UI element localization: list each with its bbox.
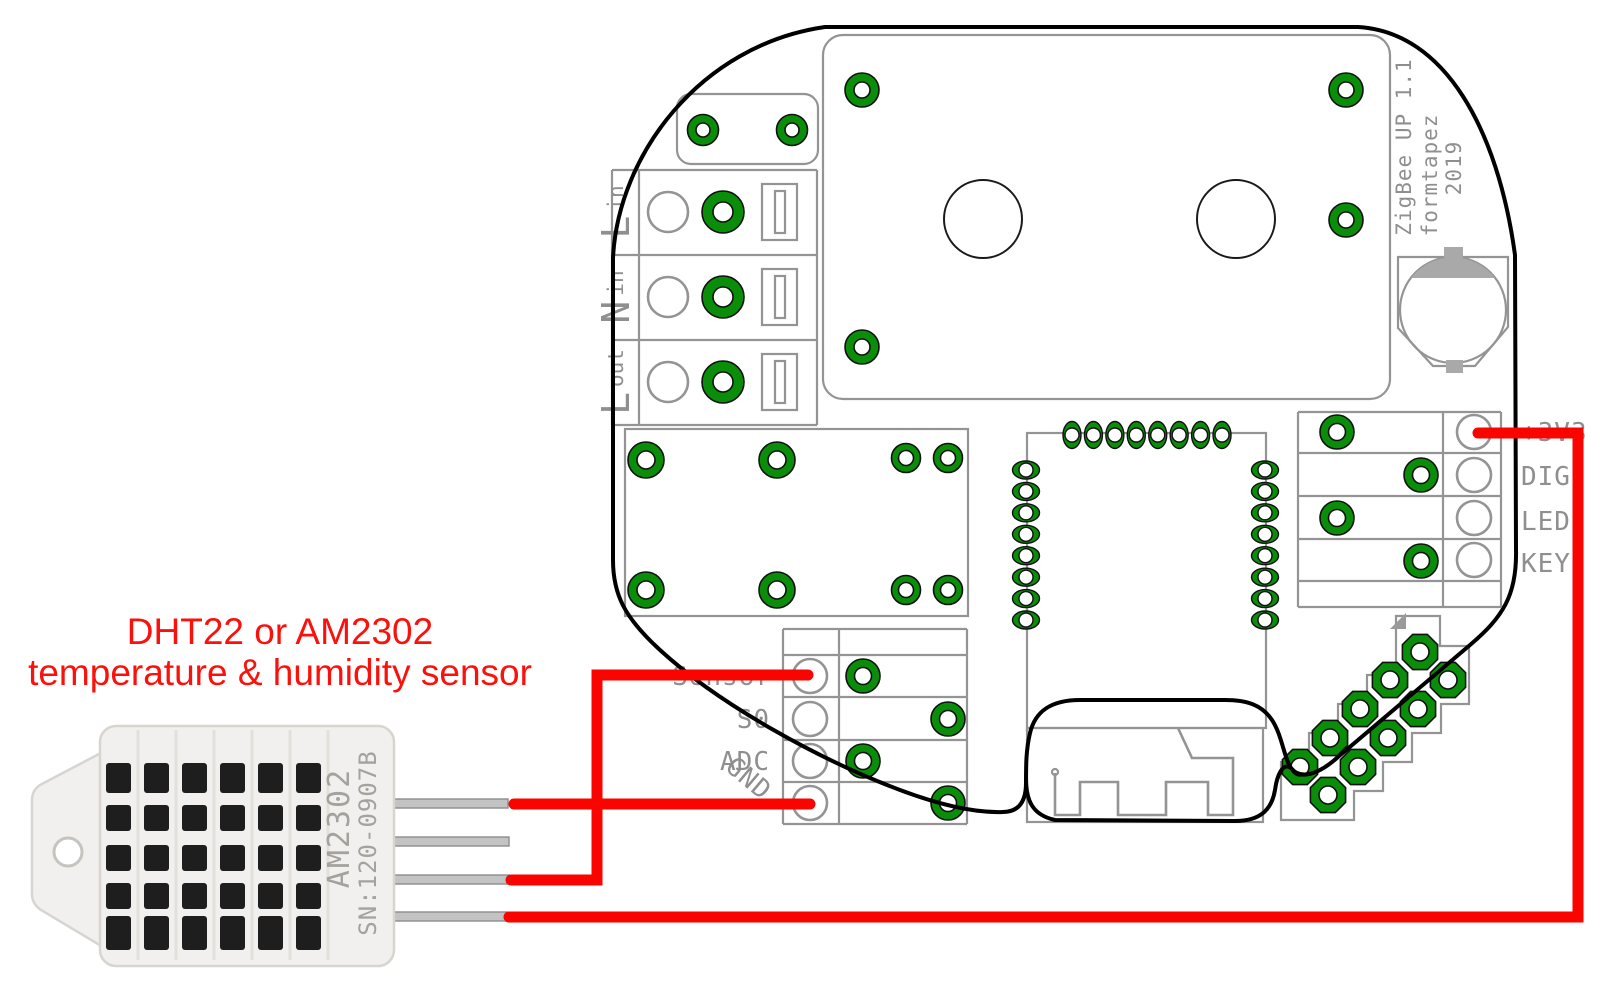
terminal-slot-icon	[762, 184, 797, 410]
header-pad-hole	[1409, 700, 1427, 718]
header-pad-hole	[1381, 671, 1399, 689]
solder-pad-hole	[637, 451, 655, 469]
solder-pad-hole	[1329, 510, 1346, 527]
solder-pad-hole	[1413, 553, 1430, 570]
solder-pad-hole	[768, 451, 786, 469]
grille-slot	[144, 883, 169, 909]
castellated-pad-hole	[1019, 570, 1033, 584]
grille-slot	[106, 883, 131, 909]
grille-slot	[220, 805, 245, 831]
grille-slot	[106, 763, 131, 793]
solder-pad-hole	[854, 82, 870, 98]
solder-pad-hole	[713, 372, 733, 392]
pin-hole	[648, 192, 688, 232]
grille-slot	[258, 916, 283, 950]
grille-slot	[220, 916, 245, 950]
pin-hole	[793, 702, 827, 736]
solder-pad-hole	[855, 668, 872, 685]
grille-slot	[182, 763, 207, 793]
radio-module-outline	[1027, 433, 1266, 728]
castellated-pad-hole	[1019, 463, 1033, 477]
relay-outline	[823, 35, 1390, 399]
solder-pad-hole	[941, 451, 956, 466]
castellated-pad-hole	[1194, 428, 1208, 442]
grille-slot	[220, 883, 245, 909]
solder-pad-hole	[768, 581, 786, 599]
grille-slot	[296, 845, 321, 871]
pin-hole	[1457, 543, 1491, 577]
dht22-sensor: AM2302 SN:120-0907B	[32, 726, 509, 966]
castellated-pad-hole	[1019, 592, 1033, 606]
capacitor-footprint	[1398, 247, 1508, 373]
grille-slot	[220, 763, 245, 793]
grille-slot	[144, 763, 169, 793]
solder-pad-hole	[941, 583, 956, 598]
grille-slot	[182, 883, 207, 909]
grille-slot	[106, 845, 131, 871]
castellated-pad-hole	[1086, 428, 1100, 442]
sensor-pins	[393, 799, 509, 921]
annotation-line-2: temperature & humidity sensor	[28, 652, 532, 693]
diagram-canvas: Lin Nin Lout Sensor S0 ADC GND +3V3 DIG …	[0, 0, 1610, 1006]
pin-hole	[648, 362, 688, 402]
solder-pad-hole	[713, 287, 733, 307]
wiring-diagram: Lin Nin Lout Sensor S0 ADC GND +3V3 DIG …	[0, 0, 1610, 1006]
grille-slot	[296, 883, 321, 909]
castellated-pad-hole	[1151, 428, 1165, 442]
castellated-pad-hole	[1129, 428, 1143, 442]
sensor-mount-hole	[54, 838, 82, 866]
solder-pad-hole	[1338, 82, 1354, 98]
label-key: KEY	[1521, 549, 1571, 579]
header-pad-hole	[1319, 786, 1337, 804]
castellated-pad-hole	[1108, 428, 1122, 442]
solder-pad-hole	[855, 753, 872, 770]
castellated-pad-hole	[1019, 613, 1033, 627]
annotation-line-1: DHT22 or AM2302	[127, 611, 433, 652]
castellated-pad-hole	[1019, 506, 1033, 520]
header-pad-hole	[1351, 700, 1369, 718]
label-dig: DIG	[1521, 462, 1571, 492]
grille-slot	[258, 883, 283, 909]
antenna-tab-outline	[1026, 767, 1291, 821]
capacitor-polarity-cap	[1411, 257, 1495, 278]
antenna-trace	[1055, 728, 1233, 815]
castellated-pad-hole	[1172, 428, 1186, 442]
solder-pad-hole	[1329, 424, 1346, 441]
castellated-pad-hole	[1258, 484, 1272, 498]
header-pad-hole	[1349, 758, 1367, 776]
grille-slot	[106, 805, 131, 831]
credit-line-3: 2019	[1442, 141, 1466, 196]
header-octagon-pads	[1282, 634, 1465, 812]
antenna-box	[1027, 728, 1263, 822]
terminal-label-l-out: Lout	[594, 349, 638, 415]
header-pad-hole	[1439, 671, 1457, 689]
wires	[509, 433, 1578, 917]
castellated-pad-hole	[1258, 549, 1272, 563]
grille-slot	[220, 845, 245, 871]
grille-slot	[182, 845, 207, 871]
module-castellated-pads	[1013, 422, 1279, 630]
grille-slot	[106, 916, 131, 950]
castellated-pad-hole	[1258, 613, 1272, 627]
credit-line-1: ZigBee UP 1.1	[1392, 58, 1416, 235]
solder-pad-hole	[696, 123, 710, 137]
grille-slot	[144, 805, 169, 831]
grille-slot	[296, 916, 321, 950]
pin-hole	[944, 180, 1022, 258]
castellated-pad-hole	[1258, 570, 1272, 584]
grille-slot	[182, 805, 207, 831]
label-led: LED	[1521, 507, 1571, 537]
solder-pad-hole	[785, 123, 799, 137]
grille-slot	[258, 805, 283, 831]
castellated-pad-hole	[1258, 527, 1272, 541]
solder-pad-hole	[1338, 212, 1354, 228]
solder-pad-hole	[899, 451, 914, 466]
castellated-pad-hole	[1065, 428, 1079, 442]
grille-slot	[258, 763, 283, 793]
grille-slot	[144, 916, 169, 950]
pin-hole	[648, 277, 688, 317]
castellated-pad-hole	[1019, 484, 1033, 498]
grille-slot	[182, 916, 207, 950]
header-pad-hole	[1411, 643, 1429, 661]
castellated-pad-hole	[1258, 592, 1272, 606]
grille-slot	[296, 763, 321, 793]
sensor-pin-2	[393, 837, 509, 846]
grille-slot	[258, 845, 283, 871]
solder-pad-hole	[637, 581, 655, 599]
annotation-text: DHT22 or AM2302 temperature & humidity s…	[28, 611, 532, 693]
solder-pad-hole	[713, 202, 733, 222]
credit-line-2: formtapez	[1418, 114, 1442, 237]
solder-pad-hole	[1413, 467, 1430, 484]
sensor-marking-serial: SN:120-0907B	[354, 750, 382, 935]
castellated-pad-hole	[1215, 428, 1229, 442]
sensor-pin-4	[393, 912, 507, 921]
header-pad-hole	[1379, 729, 1397, 747]
sensor-pin-1	[393, 799, 508, 808]
sensor-marking-model: AM2302	[322, 768, 357, 888]
solder-pad-hole	[899, 583, 914, 598]
header-pad-hole	[1321, 729, 1339, 747]
terminal-label-n-in: Nin	[594, 270, 638, 323]
castellated-pad-hole	[1019, 527, 1033, 541]
pin-hole	[1457, 458, 1491, 492]
antenna-feed-dot	[1052, 769, 1058, 775]
pin-hole	[1457, 501, 1491, 535]
pin-hole	[1197, 180, 1275, 258]
solder-pad-hole	[854, 339, 870, 355]
grille-slot	[144, 845, 169, 871]
grille-slot	[296, 805, 321, 831]
castellated-pad-hole	[1258, 463, 1272, 477]
castellated-pad-hole	[1019, 549, 1033, 563]
castellated-pad-hole	[1258, 506, 1272, 520]
sensor-pin-3	[393, 875, 509, 884]
solder-pad-hole	[940, 711, 957, 728]
